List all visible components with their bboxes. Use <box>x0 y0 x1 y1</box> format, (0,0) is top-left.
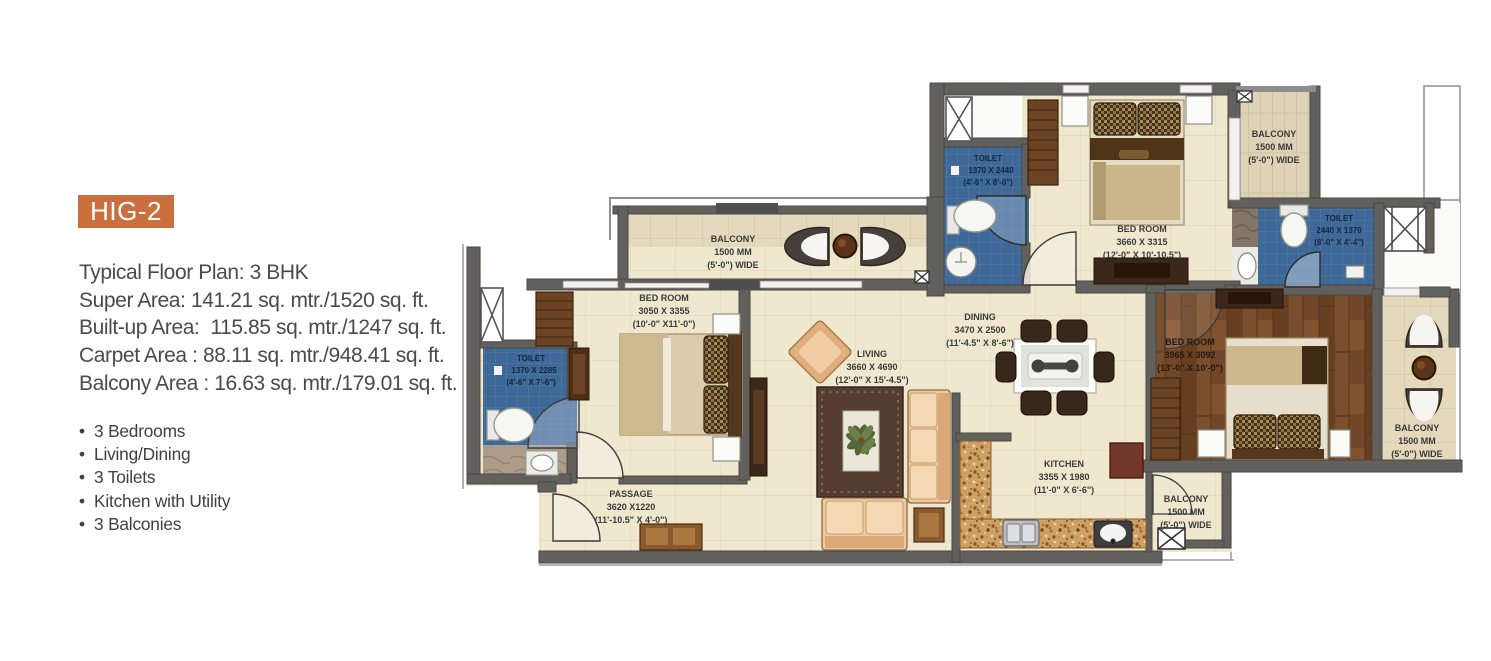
svg-text:(5'-0") WIDE: (5'-0") WIDE <box>1248 155 1299 165</box>
svg-text:3660 X 4690: 3660 X 4690 <box>846 362 897 372</box>
svg-text:BALCONY: BALCONY <box>711 234 756 244</box>
svg-text:1500 MM: 1500 MM <box>1167 507 1205 517</box>
svg-text:TOILET: TOILET <box>974 154 1002 163</box>
svg-text:3470 X 2500: 3470 X 2500 <box>954 325 1005 335</box>
svg-text:(10'-0" X11'-0"): (10'-0" X11'-0") <box>633 319 696 329</box>
svg-text:TOILET: TOILET <box>1325 214 1353 223</box>
svg-text:(4'-6" X 8'-0"): (4'-6" X 8'-0") <box>963 178 1013 187</box>
svg-text:PASSAGE: PASSAGE <box>609 489 652 499</box>
svg-text:1500 MM: 1500 MM <box>1255 142 1293 152</box>
svg-text:2440 X 1370: 2440 X 1370 <box>1316 226 1362 235</box>
svg-text:1370 X 2440: 1370 X 2440 <box>968 166 1014 175</box>
svg-text:3050 X 3355: 3050 X 3355 <box>638 306 689 316</box>
svg-text:(5'-0") WIDE: (5'-0") WIDE <box>1160 520 1211 530</box>
svg-text:1370 X 2285: 1370 X 2285 <box>511 366 557 375</box>
svg-text:(11'-4.5" X 8'-6"): (11'-4.5" X 8'-6") <box>946 338 1014 348</box>
svg-text:(13'-0" X 10'-0"): (13'-0" X 10'-0") <box>1157 363 1223 373</box>
svg-text:3660 X 3315: 3660 X 3315 <box>1116 237 1167 247</box>
svg-text:BALCONY: BALCONY <box>1252 129 1297 139</box>
svg-text:3965 X 3092: 3965 X 3092 <box>1164 350 1215 360</box>
svg-text:LIVING: LIVING <box>857 349 887 359</box>
svg-text:(11'-10.5" X 4'-0"): (11'-10.5" X 4'-0") <box>595 515 668 525</box>
svg-text:(5'-0") WIDE: (5'-0") WIDE <box>707 260 758 270</box>
svg-text:(4'-6" X 7'-6"): (4'-6" X 7'-6") <box>506 378 556 387</box>
svg-text:BED ROOM: BED ROOM <box>1117 224 1167 234</box>
svg-text:KITCHEN: KITCHEN <box>1044 459 1084 469</box>
svg-text:BED ROOM: BED ROOM <box>1165 337 1215 347</box>
svg-text:1500 MM: 1500 MM <box>714 247 752 257</box>
svg-text:3355 X 1980: 3355 X 1980 <box>1038 472 1089 482</box>
svg-text:(12'-0" X 15'-4.5"): (12'-0" X 15'-4.5") <box>835 375 908 385</box>
svg-text:3620 X1220: 3620 X1220 <box>607 502 656 512</box>
svg-text:1500 MM: 1500 MM <box>1398 436 1436 446</box>
svg-text:DINING: DINING <box>964 312 996 322</box>
svg-text:BALCONY: BALCONY <box>1395 423 1440 433</box>
svg-text:TOILET: TOILET <box>517 354 545 363</box>
svg-text:(5'-0") WIDE: (5'-0") WIDE <box>1391 449 1442 459</box>
svg-text:(11'-0" X 6'-6"): (11'-0" X 6'-6") <box>1034 485 1094 495</box>
svg-text:BED ROOM: BED ROOM <box>639 293 689 303</box>
svg-text:BALCONY: BALCONY <box>1164 494 1209 504</box>
svg-text:(8'-0" X 4'-4"): (8'-0" X 4'-4") <box>1314 238 1364 247</box>
svg-text:(12'-0" X 10'-10.5"): (12'-0" X 10'-10.5") <box>1103 250 1181 260</box>
